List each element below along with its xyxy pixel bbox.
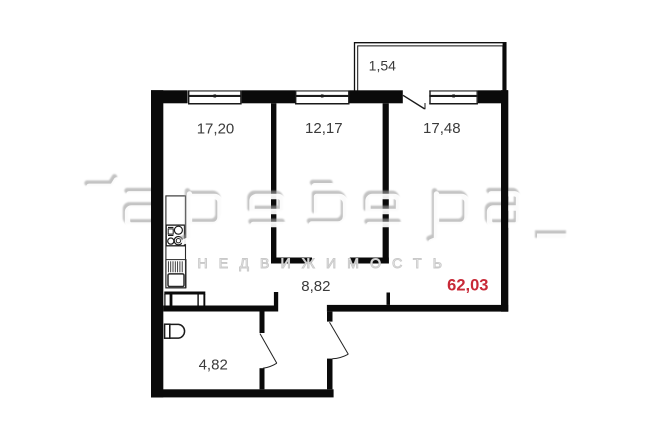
svg-text:1,54: 1,54 (369, 57, 396, 73)
svg-text:12,17: 12,17 (305, 120, 343, 137)
svg-text:8,82: 8,82 (301, 278, 330, 295)
svg-text:62,03: 62,03 (447, 277, 488, 295)
svg-text:НЕДВИЖИМОСТЬ: НЕДВИЖИМОСТЬ (198, 255, 454, 271)
svg-text:17,48: 17,48 (423, 120, 461, 137)
svg-text:17,20: 17,20 (197, 121, 235, 138)
svg-text:4,82: 4,82 (199, 357, 228, 374)
